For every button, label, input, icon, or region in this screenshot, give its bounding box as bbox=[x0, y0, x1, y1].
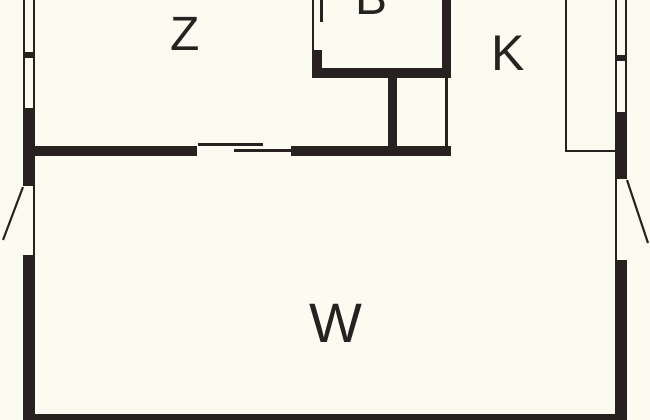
floor-plan: Z B K W bbox=[0, 0, 650, 420]
right-door-jamb-line bbox=[615, 179, 617, 260]
bathroom-door-leaf-line bbox=[320, 0, 323, 22]
interior-wall-right-segment bbox=[291, 146, 451, 156]
closet-right-line bbox=[445, 78, 448, 149]
right-wall-lower-segment bbox=[615, 260, 627, 420]
room-label-w: W bbox=[309, 295, 362, 351]
sliding-door-leaf-outer bbox=[198, 143, 263, 146]
sliding-door-leaf-inner bbox=[234, 149, 291, 152]
left-wall-upper-segment bbox=[23, 108, 35, 186]
right-wall-window-divider bbox=[615, 55, 627, 61]
bathroom-door-opening-line bbox=[312, 0, 314, 50]
room-label-z: Z bbox=[170, 11, 199, 59]
bathroom-right-wall bbox=[442, 0, 451, 78]
left-exterior-door-leaf bbox=[3, 187, 23, 240]
interior-wall-left-segment bbox=[35, 146, 197, 156]
closet-divider-wall bbox=[388, 78, 397, 156]
left-wall-window-divider bbox=[23, 52, 35, 58]
left-wall-lower-segment bbox=[23, 255, 35, 420]
room-label-b: B bbox=[355, 0, 387, 23]
kitchen-counter-front-line bbox=[565, 0, 567, 152]
kitchen-counter-bottom-line bbox=[565, 150, 615, 152]
bottom-exterior-wall bbox=[23, 414, 627, 420]
room-label-k: K bbox=[491, 28, 524, 78]
door-swing-overlay bbox=[0, 0, 650, 420]
left-door-jamb-line bbox=[33, 186, 35, 255]
bathroom-bottom-wall bbox=[312, 68, 451, 78]
right-wall-upper-segment bbox=[615, 112, 627, 179]
right-exterior-door-leaf bbox=[627, 180, 648, 243]
